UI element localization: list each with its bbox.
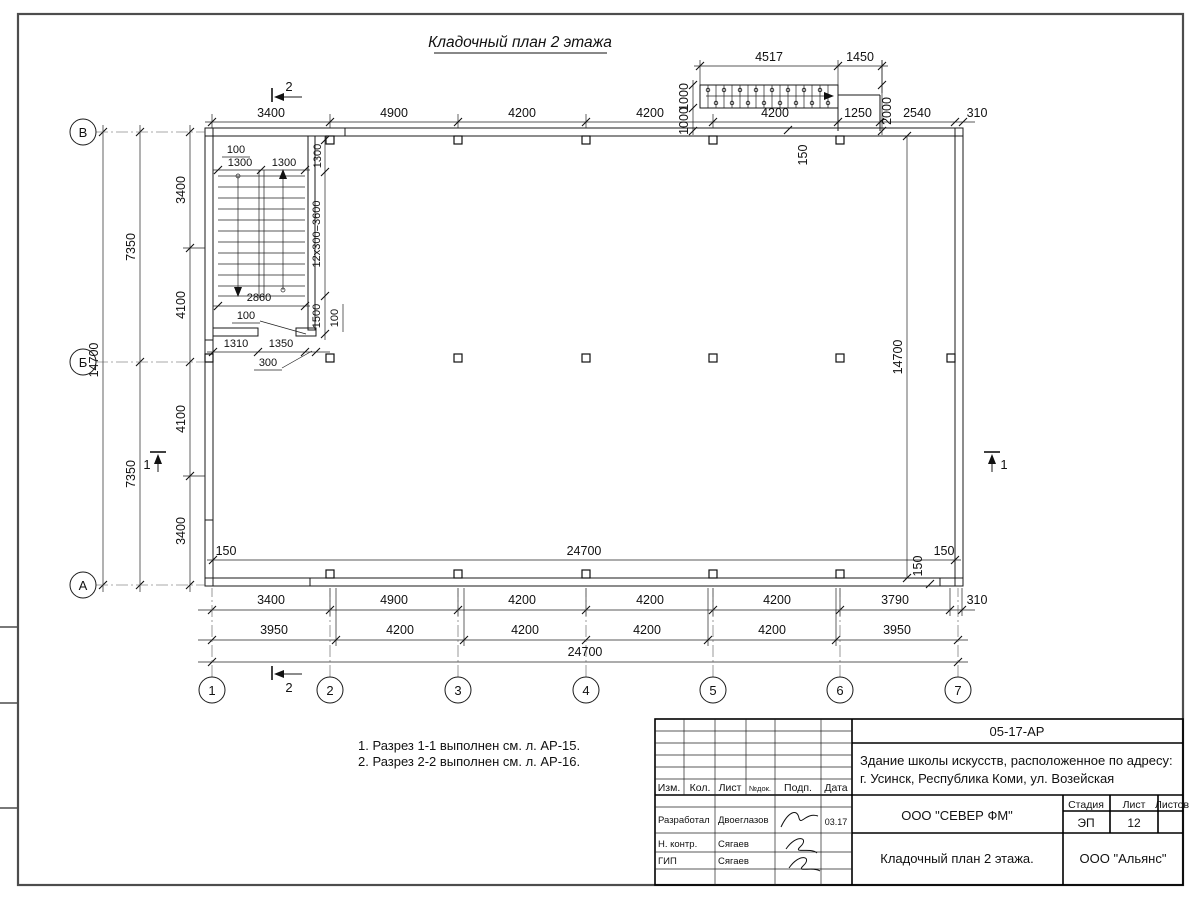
- stair-treads: [218, 176, 305, 296]
- stairwell-wall-bottom-a: [213, 328, 258, 336]
- dim-label: 1250: [844, 106, 872, 120]
- wall-left-masonry-top: [205, 128, 213, 340]
- dim-label: 1310: [224, 338, 248, 350]
- dim-label: 2860: [247, 292, 271, 304]
- title-block-staff: Разработал Двоеглазов 03.17 Н. контр. Ся…: [658, 815, 847, 867]
- axis-label-h: 4: [582, 683, 589, 698]
- axis-label-v: В: [79, 125, 88, 140]
- dim-label: 4200: [511, 623, 539, 637]
- name-developer: Двоеглазов: [718, 815, 769, 826]
- dim-label: 24700: [567, 544, 602, 558]
- col-izm: Изм.: [658, 782, 681, 794]
- dim-label: 1000: [677, 107, 691, 135]
- wall-top: [205, 128, 963, 136]
- dim-label: 14700: [891, 340, 905, 375]
- drawing-title-cell: Кладочный план 2 этажа.: [880, 851, 1034, 866]
- arrow-up-icon: [154, 454, 162, 464]
- dim-label: 150: [216, 544, 237, 558]
- dim-label: 100: [329, 309, 341, 327]
- column-mark: [709, 354, 717, 362]
- section-2-bottom: 2: [272, 666, 302, 695]
- dim-label: 150: [911, 556, 925, 577]
- external-stair-flight: [700, 85, 838, 108]
- role-gip: ГИП: [658, 856, 677, 867]
- section-1-left: 1: [143, 452, 166, 472]
- section-label: 1: [1000, 457, 1007, 472]
- title-block-header: Изм. Кол. Лист №док. Подп. Дата: [658, 782, 848, 794]
- dim-label: 4100: [174, 291, 188, 319]
- column-mark: [836, 570, 844, 578]
- section-label: 2: [285, 680, 292, 695]
- arrow-up-icon: [279, 169, 287, 179]
- floor-plan: 3400 4900 4200 4200 4200 1250 2540 310 4…: [70, 50, 1008, 769]
- dim-label: 4200: [508, 593, 536, 607]
- dimension-labels: 3400 4900 4200 4200 4200 1250 2540 310 4…: [87, 50, 987, 659]
- col-kol: Кол.: [690, 782, 711, 794]
- section-1-right: 1: [984, 452, 1008, 472]
- axis-label-h: 3: [454, 683, 461, 698]
- arrow-right-icon: [824, 92, 834, 100]
- drawing-sheet: Кладочный план 2 этажа: [0, 0, 1200, 900]
- notes: 1. Разрез 1-1 выполнен см. л. АР-15. 2. …: [358, 738, 580, 769]
- arrow-down-icon: [234, 287, 242, 297]
- dim-label: 1300: [272, 157, 296, 169]
- col-podp: Подп.: [784, 782, 812, 794]
- column-mark: [709, 136, 717, 144]
- dim-label: 2000: [880, 97, 894, 125]
- wall-bottom: [205, 578, 963, 586]
- arrow-left-icon: [274, 670, 284, 678]
- title-block-thin-lines: [655, 719, 852, 885]
- dim-label: 24700: [568, 645, 603, 659]
- column-mark: [326, 570, 334, 578]
- axis-label-h: 5: [709, 683, 716, 698]
- role-ncontrol: Н. контр.: [658, 839, 697, 850]
- stage-value: ЭП: [1077, 816, 1094, 830]
- title-block: Изм. Кол. Лист №док. Подп. Дата Разработ…: [655, 719, 1189, 885]
- stairwell: [218, 169, 305, 298]
- axis-label-h: 7: [954, 683, 961, 698]
- dim-label: 100: [227, 144, 245, 156]
- dim-label: 310: [967, 593, 988, 607]
- column-mark: [582, 570, 590, 578]
- role-developer: Разработал: [658, 815, 710, 826]
- dim-label: 12x300=3600: [311, 201, 323, 268]
- axis-label-v: Б: [79, 355, 88, 370]
- sheets-label: Листов: [1155, 799, 1190, 811]
- name-ncontrol: Сягаев: [718, 839, 749, 850]
- dim-label: 150: [934, 544, 955, 558]
- column-mark: [454, 136, 462, 144]
- dim-label: 1300: [312, 144, 324, 168]
- filing-marks: [0, 627, 18, 808]
- dim-label: 7350: [124, 233, 138, 261]
- section-label: 1: [143, 457, 150, 472]
- dim-label: 4200: [763, 593, 791, 607]
- dim-label: 2540: [903, 106, 931, 120]
- axis-label-h: 2: [326, 683, 333, 698]
- dim-label: 4517: [755, 50, 783, 64]
- dim-label: 4200: [758, 623, 786, 637]
- column-mark: [454, 570, 462, 578]
- note-line: 1. Разрез 1-1 выполнен см. л. АР-15.: [358, 738, 580, 753]
- external-stair-posts: [706, 88, 830, 105]
- page-title: Кладочный план 2 этажа: [428, 34, 612, 51]
- date-developer: 03.17: [825, 817, 848, 827]
- signature: [786, 839, 817, 853]
- dim-label: 310: [967, 106, 988, 120]
- sheet-number: 12: [1127, 816, 1141, 830]
- column-mark: [205, 354, 213, 362]
- stair-direction-arrows: [234, 169, 287, 297]
- col-ndok: №док.: [749, 784, 771, 793]
- dim-label: 4200: [636, 593, 664, 607]
- column-mark: [582, 136, 590, 144]
- dim-label: 3400: [174, 176, 188, 204]
- wall-left-masonry-bottom: [205, 520, 213, 586]
- dim-label: 4900: [380, 593, 408, 607]
- dim-label: 4900: [380, 106, 408, 120]
- dim-label: 4100: [174, 405, 188, 433]
- wall-bottom-masonry-left: [213, 578, 310, 586]
- doc-code: 05-17-АР: [990, 724, 1045, 739]
- wall-top-masonry: [205, 128, 345, 136]
- dim-label: 4200: [636, 106, 664, 120]
- arrow-left-icon: [274, 93, 284, 101]
- signature: [781, 812, 818, 827]
- dim-label: 4200: [633, 623, 661, 637]
- dim-label: 7350: [124, 460, 138, 488]
- column-mark: [326, 354, 334, 362]
- col-data: Дата: [824, 782, 847, 794]
- dim-label: 3790: [881, 593, 909, 607]
- section-2-top: 2: [272, 79, 302, 102]
- dim-label: 3950: [260, 623, 288, 637]
- arrow-up-icon: [988, 454, 996, 464]
- note-line: 2. Разрез 2-2 выполнен см. л. АР-16.: [358, 754, 580, 769]
- dim-label: 4200: [508, 106, 536, 120]
- col-list: Лист: [719, 782, 742, 794]
- column-mark: [947, 354, 955, 362]
- sheet-label: Лист: [1123, 799, 1146, 811]
- stair-stringer: [259, 170, 264, 298]
- stage-label: Стадия: [1068, 799, 1104, 811]
- company-name: ООО "СЕВЕР ФМ": [901, 808, 1013, 823]
- column-mark: [836, 136, 844, 144]
- column-mark: [454, 354, 462, 362]
- wall-right-masonry: [955, 128, 963, 586]
- signatures: [781, 812, 820, 871]
- project-name-line2: г. Усинск, Республика Коми, ул. Возейска…: [860, 771, 1114, 786]
- extension-lines: [183, 60, 962, 646]
- dim-label: 1500: [311, 304, 323, 328]
- dim-label: 3400: [257, 593, 285, 607]
- column-mark: [836, 354, 844, 362]
- name-gip: Сягаев: [718, 856, 749, 867]
- dim-label: 1450: [846, 50, 874, 64]
- column-mark: [582, 354, 590, 362]
- dim-label: 300: [259, 357, 277, 369]
- wall-bottom-masonry-right: [940, 578, 963, 586]
- dim-label: 4200: [761, 106, 789, 120]
- dim-label: 3950: [883, 623, 911, 637]
- dim-label: 4200: [386, 623, 414, 637]
- external-stair-treads: [708, 85, 828, 108]
- dim-label: 1350: [269, 338, 293, 350]
- dim-label: 1000: [677, 83, 691, 111]
- axis-label-v: А: [79, 578, 88, 593]
- dim-label: 3400: [257, 106, 285, 120]
- section-label: 2: [285, 79, 292, 94]
- dim-label: 100: [237, 310, 255, 322]
- dim-label: 3400: [174, 517, 188, 545]
- axis-label-h: 6: [836, 683, 843, 698]
- column-mark: [709, 570, 717, 578]
- axis-label-h: 1: [208, 683, 215, 698]
- dim-label: 150: [796, 145, 810, 166]
- dim-label: 14700: [87, 343, 101, 378]
- dim-label: 1300: [228, 157, 252, 169]
- project-name-line1: Здание школы искусств, расположенное по …: [860, 753, 1173, 768]
- contractor-name: ООО "Альянс": [1080, 851, 1167, 866]
